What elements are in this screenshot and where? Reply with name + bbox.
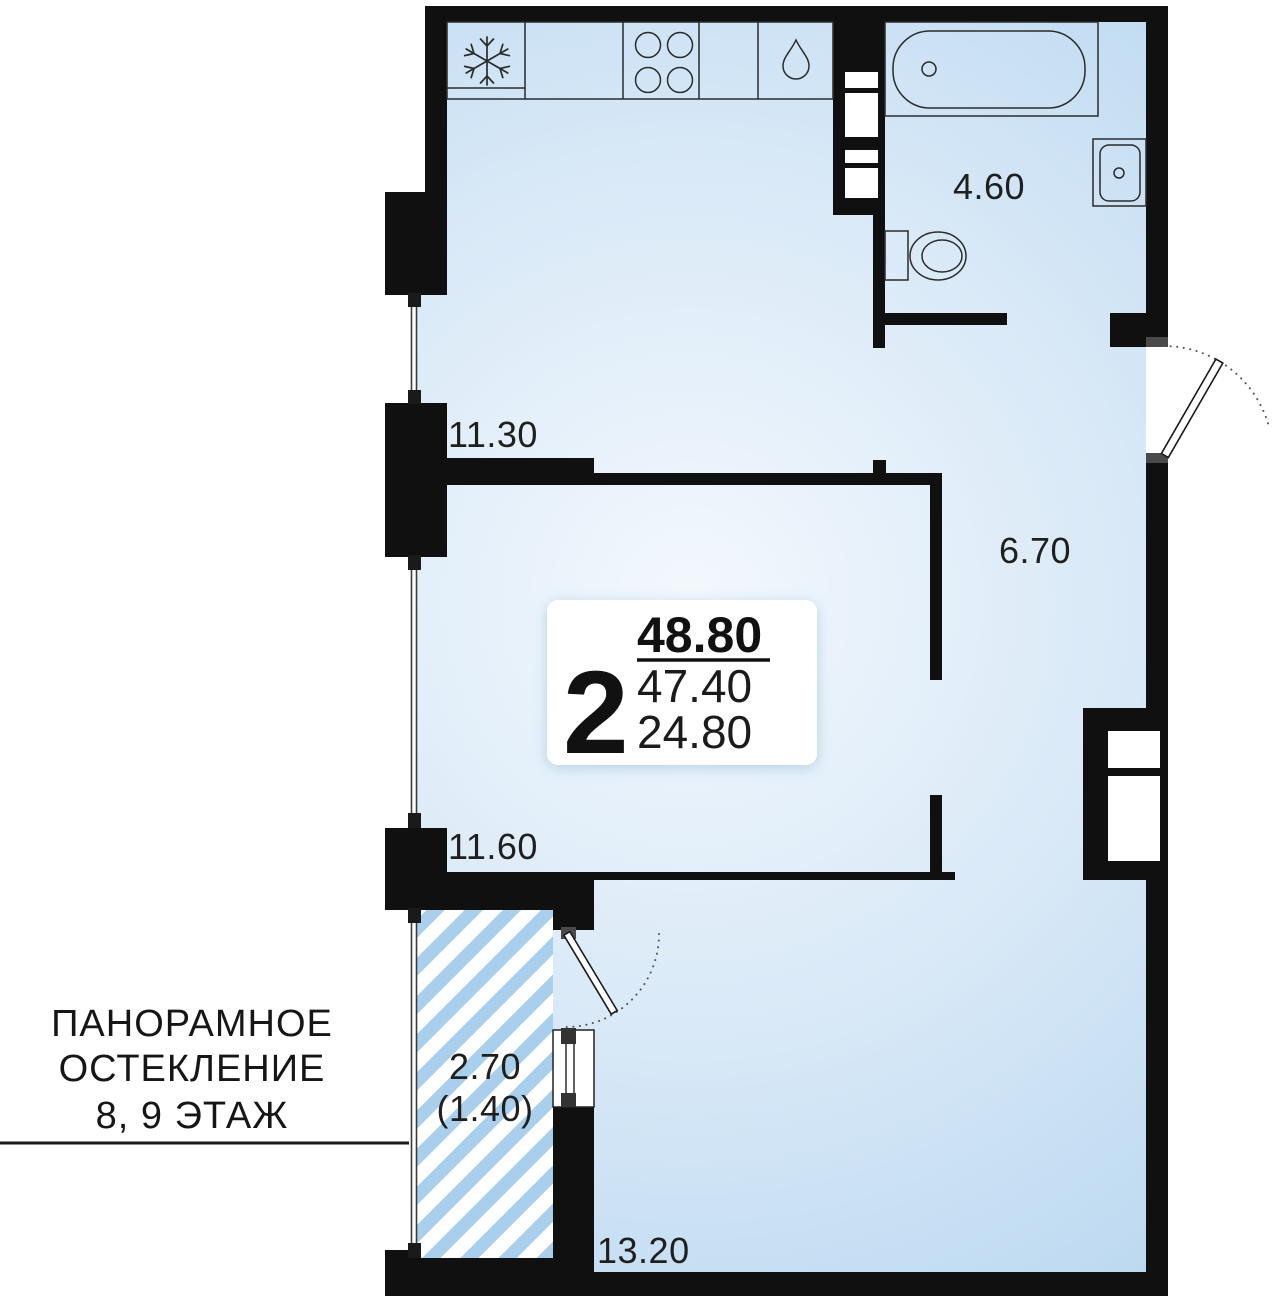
wall-balcony-door-top <box>553 880 594 930</box>
room-label-balcony-reduced: (1.40) <box>436 1088 533 1129</box>
wall-bathroom-left <box>873 215 885 348</box>
duct-shaft-3 <box>845 150 878 163</box>
room-label-balcony: 2.70 <box>449 1046 521 1087</box>
info-card: 2 48.80 47.40 24.80 <box>547 600 817 779</box>
floor-plan: 11.30 4.60 6.70 11.60 13.20 2.70 (1.40) … <box>0 0 1280 1296</box>
entrance-door <box>1146 337 1269 463</box>
wall-bottom-balcony <box>417 1258 554 1296</box>
annotation-line-1: ПАНОРАМНОЕ <box>51 1003 333 1045</box>
wall-bedroom-top-thick <box>441 458 594 485</box>
room-label-living-room: 13.20 <box>597 1230 690 1271</box>
duct-shaft-1 <box>845 72 878 88</box>
area-total: 48.80 <box>637 607 762 663</box>
area-without-balcony: 47.40 <box>637 660 752 712</box>
room-label-kitchen-living: 11.30 <box>448 414 538 455</box>
wall-left-pier-3 <box>385 828 447 873</box>
entrance-door-leaf <box>1161 359 1222 457</box>
window-cap <box>408 555 421 570</box>
duct-shaft-6 <box>1108 776 1160 861</box>
window-cap <box>408 390 421 404</box>
wall-balcony-lower <box>553 1105 594 1272</box>
wall-bedroom-right-upper <box>930 473 942 680</box>
window-cap <box>408 293 421 307</box>
wall-bathroom-bottom <box>878 313 1007 325</box>
duct-shaft-5 <box>1108 731 1160 768</box>
window-cap <box>561 1093 576 1107</box>
wall-right-upper <box>1146 22 1168 338</box>
annotation-line-2: ОСТЕКЛЕНИЕ <box>59 1048 326 1090</box>
floor-plan-canvas: 11.30 4.60 6.70 11.60 13.20 2.70 (1.40) … <box>0 0 1280 1296</box>
annotation-line-3: 8, 9 ЭТАЖ <box>96 1095 289 1137</box>
window-cap <box>408 908 421 923</box>
room-label-bathroom: 4.60 <box>953 166 1025 207</box>
wall-top <box>425 6 1168 22</box>
wall-bedroom-top-thin <box>594 473 942 485</box>
wall-left-upper <box>425 22 447 192</box>
wall-bottom-main <box>553 1272 1168 1296</box>
window-cap <box>408 1243 421 1258</box>
rooms-count: 2 <box>563 647 629 779</box>
duct-shaft-4 <box>845 168 878 198</box>
duct-shaft-2 <box>845 93 878 137</box>
entrance-opening <box>1146 347 1168 453</box>
annotation: ПАНОРАМНОЕ ОСТЕКЛЕНИЕ 8, 9 ЭТАЖ <box>0 1003 409 1143</box>
room-label-bedroom: 11.60 <box>448 826 538 867</box>
window-cap <box>561 1028 576 1044</box>
area-living: 24.80 <box>637 706 752 758</box>
wall-left-pier-2 <box>385 403 447 557</box>
window-cap <box>408 813 421 828</box>
wall-bathroom-bottom-right <box>1110 313 1146 347</box>
wall-left-pier-1 <box>385 192 447 295</box>
room-label-hallway: 6.70 <box>999 530 1071 571</box>
wall-stub <box>873 460 886 485</box>
entrance-door-swing-arc <box>1164 346 1269 427</box>
wall-bedroom-right-lower <box>930 795 942 880</box>
